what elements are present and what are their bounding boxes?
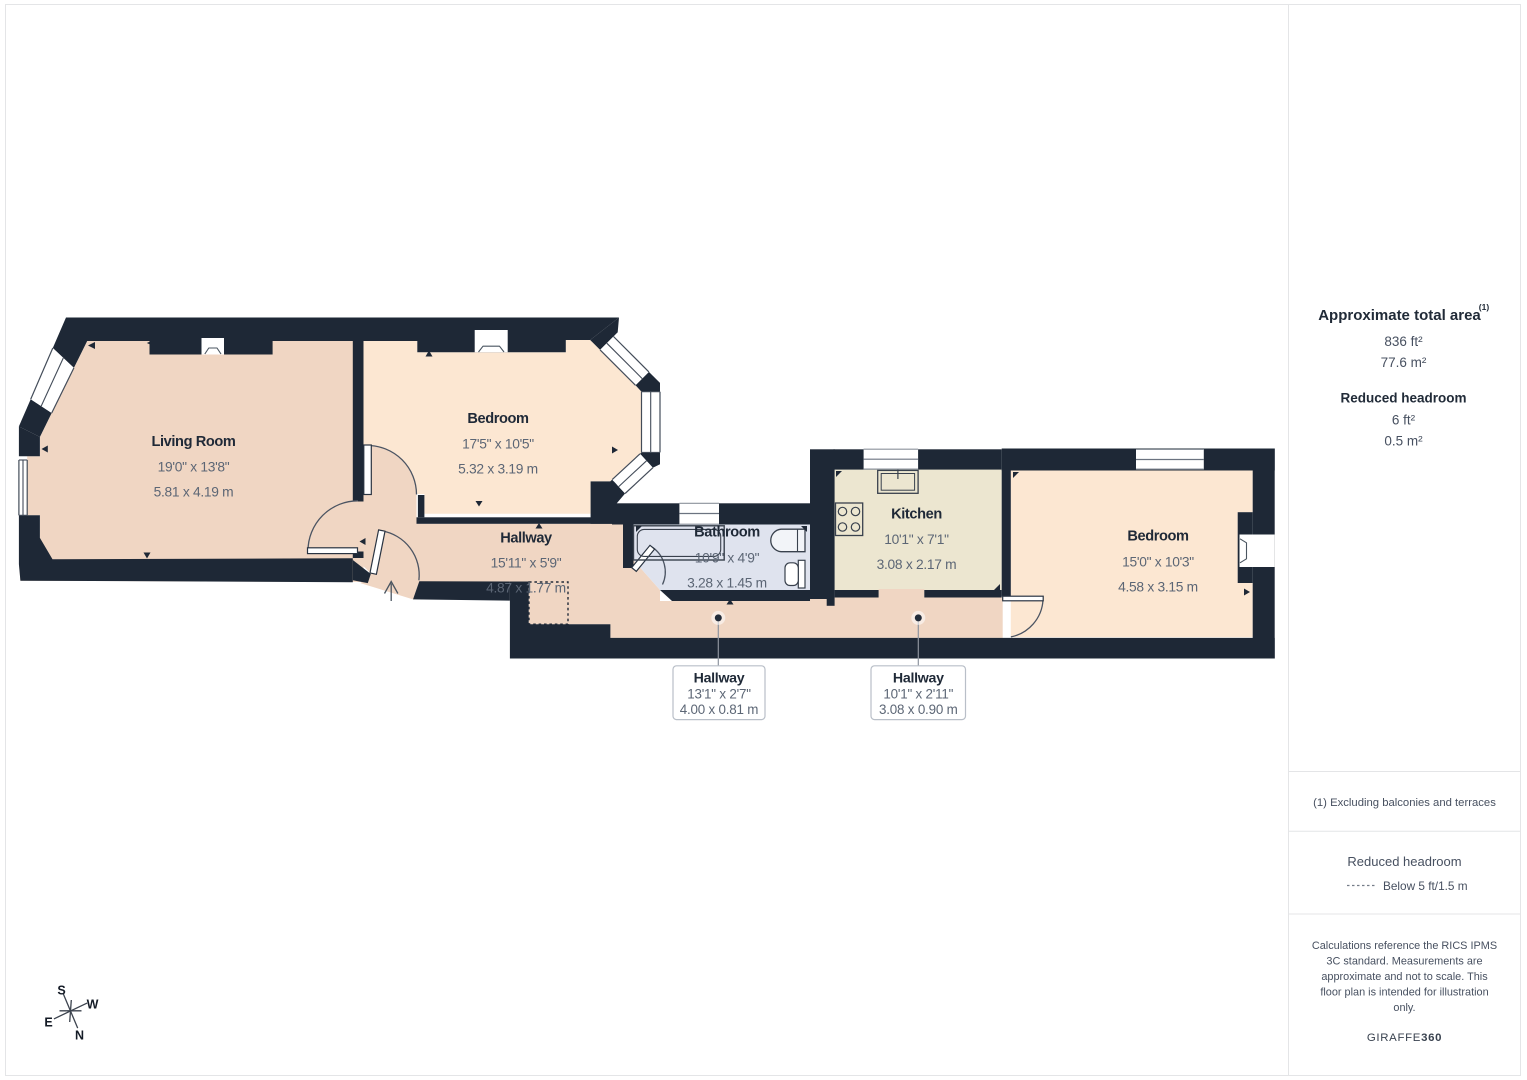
svg-text:10'1" x 7'1": 10'1" x 7'1" <box>884 532 949 547</box>
svg-text:(1) Excluding balconies and te: (1) Excluding balconies and terraces <box>1313 797 1496 809</box>
svg-text:19'0" x 13'8": 19'0" x 13'8" <box>158 460 230 475</box>
svg-text:3.08 x 2.17 m: 3.08 x 2.17 m <box>877 557 957 572</box>
svg-text:3C standard. Measurements are: 3C standard. Measurements are <box>1326 956 1482 968</box>
svg-text:3.08 x 0.90 m: 3.08 x 0.90 m <box>879 702 958 717</box>
svg-text:Hallway: Hallway <box>500 531 553 547</box>
svg-text:836 ft²: 836 ft² <box>1384 334 1423 349</box>
svg-text:5.32 x 3.19 m: 5.32 x 3.19 m <box>458 462 538 477</box>
svg-text:6 ft²: 6 ft² <box>1392 413 1416 428</box>
svg-text:Reduced headroom: Reduced headroom <box>1347 854 1461 869</box>
svg-text:W: W <box>87 998 99 1012</box>
svg-text:(1): (1) <box>1479 302 1490 312</box>
svg-text:floor plan is intended for ill: floor plan is intended for illustration <box>1320 987 1488 999</box>
svg-text:Reduced headroom: Reduced headroom <box>1340 391 1466 406</box>
svg-text:Hallway: Hallway <box>694 671 745 687</box>
svg-text:10'9" x 4'9": 10'9" x 4'9" <box>695 551 760 566</box>
svg-text:4.87 x 1.77 m: 4.87 x 1.77 m <box>486 581 566 596</box>
svg-text:Calculations reference the RIC: Calculations reference the RICS IPMS <box>1312 940 1497 952</box>
svg-text:Bedroom: Bedroom <box>1127 529 1189 545</box>
svg-text:approximate and not to scale.: approximate and not to scale. This <box>1321 971 1488 983</box>
svg-text:N: N <box>75 1029 84 1043</box>
svg-text:15'0" x 10'3": 15'0" x 10'3" <box>1122 555 1194 570</box>
svg-text:only.: only. <box>1393 1002 1415 1014</box>
svg-text:0.5 m²: 0.5 m² <box>1384 434 1423 449</box>
svg-text:Bathroom: Bathroom <box>694 525 760 541</box>
svg-text:Below 5 ft/1.5 m: Below 5 ft/1.5 m <box>1383 879 1468 893</box>
svg-text:4.58 x 3.15 m: 4.58 x 3.15 m <box>1118 580 1198 595</box>
svg-text:15'11" x 5'9": 15'11" x 5'9" <box>491 556 562 571</box>
svg-text:3.28 x 1.45 m: 3.28 x 1.45 m <box>687 576 767 591</box>
svg-text:5.81 x 4.19 m: 5.81 x 4.19 m <box>154 485 234 500</box>
svg-text:4.00 x 0.81 m: 4.00 x 0.81 m <box>680 702 759 717</box>
svg-text:Bedroom: Bedroom <box>467 411 529 427</box>
svg-text:77.6 m²: 77.6 m² <box>1381 355 1427 370</box>
svg-text:Approximate total area: Approximate total area <box>1318 307 1481 324</box>
svg-text:Living Room: Living Room <box>152 434 236 450</box>
svg-text:17'5" x 10'5": 17'5" x 10'5" <box>462 437 534 452</box>
svg-text:Kitchen: Kitchen <box>891 507 942 523</box>
svg-text:S: S <box>57 984 65 998</box>
svg-text:Hallway: Hallway <box>893 671 944 687</box>
svg-text:E: E <box>44 1016 52 1030</box>
svg-text:10'1" x 2'11": 10'1" x 2'11" <box>883 687 953 702</box>
svg-text:13'1" x 2'7": 13'1" x 2'7" <box>687 687 751 702</box>
svg-text:GIRAFFE360: GIRAFFE360 <box>1367 1032 1442 1044</box>
